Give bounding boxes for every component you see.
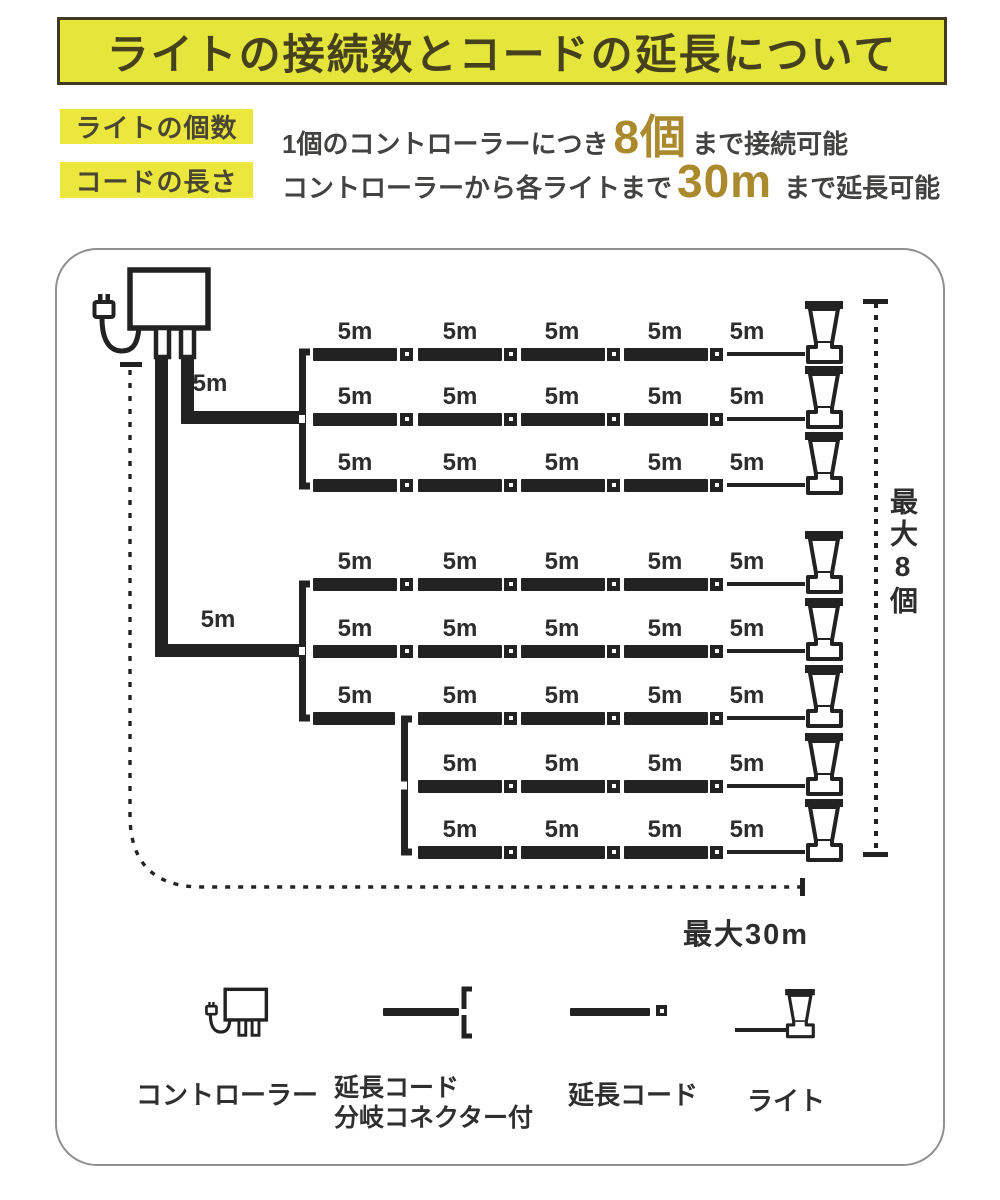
max-length-dashed-line <box>100 350 820 910</box>
legend-extension-cord-icon <box>570 1008 650 1016</box>
legend-light-cord-icon <box>735 1028 787 1032</box>
legend-controller-icon <box>203 985 269 1038</box>
legend-branch-connector-icon <box>458 984 474 1041</box>
legend-light-icon <box>782 989 818 1039</box>
measure-tick-bottom <box>863 852 888 857</box>
segment-length-label: 5m <box>323 318 387 346</box>
legend-branch-label-line1: 延長コード <box>334 1073 533 1103</box>
segment-length-label: 5m <box>530 318 594 346</box>
legend-branch-cord-icon <box>383 1008 459 1016</box>
legend-controller-label: コントローラー <box>132 1075 322 1112</box>
length-tick-end <box>800 878 805 896</box>
max-lights-label: 最大8個 <box>882 487 922 627</box>
legend-branch-label-line2: 分岐コネクター付 <box>334 1103 533 1133</box>
legend-light-label: ライト <box>734 1081 838 1118</box>
max-length-label: 最大30m <box>640 911 852 953</box>
infographic: ライトの接続数とコードの延長について ライトの個数 1個のコントローラーにつき8… <box>0 0 1000 1200</box>
legend-branch-label: 延長コード 分岐コネクター付 <box>334 1073 533 1133</box>
segment-length-label: 5m <box>715 318 779 346</box>
max-lights-dashed-line <box>874 303 878 853</box>
segment-length-label: 5m <box>633 318 697 346</box>
legend-extension-cord-label: 延長コード <box>562 1075 704 1112</box>
segment-length-label: 5m <box>428 318 492 346</box>
legend-cord-connector-icon <box>656 1005 667 1016</box>
